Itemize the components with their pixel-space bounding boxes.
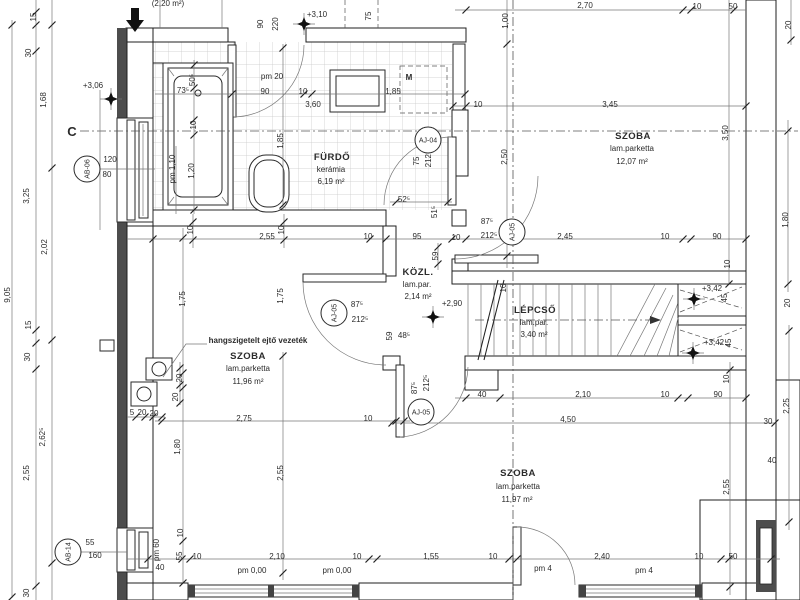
dim-label: 1,85 [276, 133, 285, 149]
dim-label: 45 [720, 293, 729, 302]
room-kozl-name: KÖZL. [403, 267, 434, 278]
level-mark: +3,42 [704, 338, 725, 347]
dim-label: 75 [412, 156, 421, 165]
level-star-icon [297, 17, 311, 31]
room-lepcso-area: 3,40 m² [520, 330, 547, 339]
dim-label: 90 [713, 232, 722, 241]
dim-label: 2,50 [500, 149, 509, 165]
dim-label: 90 [714, 390, 723, 399]
dim-label: 2,55 [276, 465, 285, 481]
dim-label: 3,60 [305, 100, 321, 109]
room-szoba3-name: SZOBA [500, 468, 536, 479]
dim-label: 50 [729, 552, 738, 561]
dim-label: 10 [299, 87, 308, 96]
dim-label: 2,02 [40, 239, 49, 255]
dim-label: 1,75 [178, 291, 187, 307]
tag-label: AJ-05 [412, 410, 430, 417]
room-furdo-finish: kerámia [317, 165, 346, 174]
dim-label: (2,20 m²) [152, 0, 185, 8]
tag-label: AB-14 [66, 542, 73, 562]
dim-label: 10 [474, 100, 483, 109]
dim-label: 20 [783, 298, 792, 307]
room-lepcso-name: LÉPCSŐ [514, 304, 556, 316]
dim-label: 2,75 [236, 414, 252, 423]
room-szoba3-area: 11,97 m² [502, 495, 533, 504]
dim-label: 10 [186, 225, 195, 234]
dim-label: pm 0,00 [238, 566, 267, 575]
room-szoba2-area: 11,96 m² [233, 377, 264, 386]
dim-label: 87⁵ [410, 382, 419, 394]
dim-label: 1,80 [781, 212, 790, 228]
room-lepcso-finish: lam.par. [520, 318, 548, 327]
dim-label: 20 [171, 392, 180, 401]
dim-label: 20 [784, 20, 793, 29]
level-star-icon [104, 92, 118, 106]
dim-label: 4,50 [560, 415, 576, 424]
dim-label: pm 60 [152, 538, 161, 561]
dim-label: 90 [256, 19, 265, 28]
dim-label: pm 0,00 [323, 566, 352, 575]
dim-label: 20 [150, 409, 159, 418]
bottom-window-left [188, 585, 359, 597]
dim-label: 2,45 [557, 232, 573, 241]
dim-label: 10 [364, 232, 373, 241]
dim-label: pm 1,10 [168, 154, 177, 183]
level-star-icon [426, 310, 440, 324]
dim-label: 10 [499, 283, 508, 292]
dim-label: pm 4 [635, 566, 653, 575]
dim-label: 2,25 [782, 398, 791, 414]
dim-label: 20 [138, 408, 147, 417]
dim-label: 3,45 [602, 100, 618, 109]
boiler-fixtures [100, 340, 172, 406]
dim-label: 52⁵ [398, 195, 410, 204]
dim-label: 212⁵ [422, 375, 431, 392]
dim-label: 2,10 [269, 552, 285, 561]
dim-label: 3,50 [721, 125, 730, 141]
sound-insulation-note: hangszigetelt ejtő vezeték [209, 336, 308, 345]
section-marker-c: C [67, 124, 77, 139]
room-kozl-finish: lam.par. [403, 280, 431, 289]
dim-label: 212⁵ [481, 231, 498, 240]
dim-label: 10 [193, 552, 202, 561]
door-aj05-room-top [455, 176, 538, 263]
bathtub [163, 63, 233, 210]
dim-label: 30 [23, 352, 32, 361]
dim-label: 40 [156, 563, 165, 572]
floor-plan-canvas: (2,20 m²)2,70105090220751,0020pm 2090103… [0, 0, 800, 600]
door-aj05-room-bottom [396, 365, 468, 437]
dim-label: 1,55 [423, 552, 439, 561]
window-ab06 [117, 118, 153, 222]
tag-label: AJ-05 [510, 223, 517, 241]
room-furdo-area: 6,19 m² [317, 177, 344, 186]
dim-label: 1,85 [385, 87, 401, 96]
dim-label: 59 [385, 331, 394, 340]
dim-label: 2,62⁵ [38, 428, 47, 447]
dim-label: 2,40 [594, 552, 610, 561]
room-szoba2-finish: lam.parketta [226, 364, 271, 373]
dim-label: 10 [452, 233, 461, 242]
dim-label: 73⁵ [177, 86, 189, 95]
dim-label: 30 [24, 48, 33, 57]
dim-label: 10 [176, 528, 185, 537]
room-szoba1-name: SZOBA [615, 131, 651, 142]
dim-label: 3,25 [22, 188, 31, 204]
level-mark: +3,42 [702, 284, 723, 293]
bottom-window-right [579, 585, 702, 597]
room-szoba1-finish: lam.parketta [610, 144, 655, 153]
dim-label: 9,05 [3, 287, 12, 303]
window-ab14 [117, 528, 153, 572]
dim-label: 5 [130, 408, 135, 417]
room-szoba3-finish: lam.parketta [496, 482, 541, 491]
dim-label: 87⁵ [481, 217, 493, 226]
dim-label: 59 [431, 251, 440, 260]
dim-label: 2,10 [575, 390, 591, 399]
dim-label: 20 [175, 373, 184, 382]
dim-label: 10 [693, 2, 702, 11]
dim-label: pm 20 [261, 72, 284, 81]
dim-label: 160 [88, 551, 102, 560]
dim-label: 10 [661, 390, 670, 399]
dim-label: 48⁵ [398, 331, 410, 340]
dim-label: 10 [722, 374, 731, 383]
dim-label: 2,55 [722, 479, 731, 495]
dim-label: 45 [724, 338, 733, 347]
dim-label: 30 [764, 417, 773, 426]
dim-label: 10 [277, 225, 286, 234]
dim-label: 1,68 [39, 92, 48, 108]
level-mark: +3,10 [307, 10, 328, 19]
dim-label: 10 [189, 120, 198, 129]
dim-label: 120 [103, 155, 117, 164]
dim-label: 75 [364, 11, 373, 20]
dim-label: 10 [723, 259, 732, 268]
dim-label: 55 [86, 538, 95, 547]
dim-label: 2,55 [259, 232, 275, 241]
level-mark: +3,06 [83, 81, 104, 90]
dim-label: 10 [695, 552, 704, 561]
dim-label: 40 [478, 390, 487, 399]
dim-label: 2,55 [22, 465, 31, 481]
door-bottom [513, 527, 575, 585]
dim-label: pm 4 [534, 564, 552, 573]
dim-label: 55 [175, 551, 184, 560]
dim-label: 80 [103, 170, 112, 179]
room-kozl-area: 2,14 m² [404, 292, 431, 301]
dim-label: 10 [489, 552, 498, 561]
dim-label: 30 [22, 588, 31, 597]
floor-plan-screenshot: { "drawing": { "type": "architectural fl… [0, 0, 800, 600]
dim-label: 212⁵ [352, 315, 369, 324]
dim-label: 15 [29, 12, 38, 21]
dim-label: 10 [353, 552, 362, 561]
dim-label: 90 [261, 87, 270, 96]
dim-label: 50⁵ [188, 74, 197, 86]
level-mark: +2,90 [442, 299, 463, 308]
dim-label: 10 [661, 232, 670, 241]
room-szoba2-name: SZOBA [230, 351, 266, 362]
dim-label: 51⁵ [430, 206, 439, 218]
dim-label: M [406, 73, 413, 82]
tag-label: AB-06 [85, 159, 92, 179]
dim-label: 220 [271, 17, 280, 31]
washbasin-counter [330, 70, 385, 112]
dim-label: 40 [768, 456, 777, 465]
dim-label: 50 [729, 2, 738, 11]
dim-label: 1,20 [187, 163, 196, 179]
dim-label: 87⁵ [351, 300, 363, 309]
dim-label: 1,80 [173, 439, 182, 455]
room-szoba1-area: 12,07 m² [616, 157, 648, 166]
dim-label: 1,75 [276, 288, 285, 304]
dim-label: 95 [413, 232, 422, 241]
tag-label: AJ-05 [332, 304, 339, 322]
dim-label: 15 [24, 320, 33, 329]
room-furdo-name: FÜRDŐ [314, 151, 350, 163]
dim-label: 2,70 [577, 1, 593, 10]
tag-label: AJ-04 [419, 138, 437, 145]
dim-label: 10 [364, 414, 373, 423]
dim-label: 1,00 [501, 13, 510, 29]
